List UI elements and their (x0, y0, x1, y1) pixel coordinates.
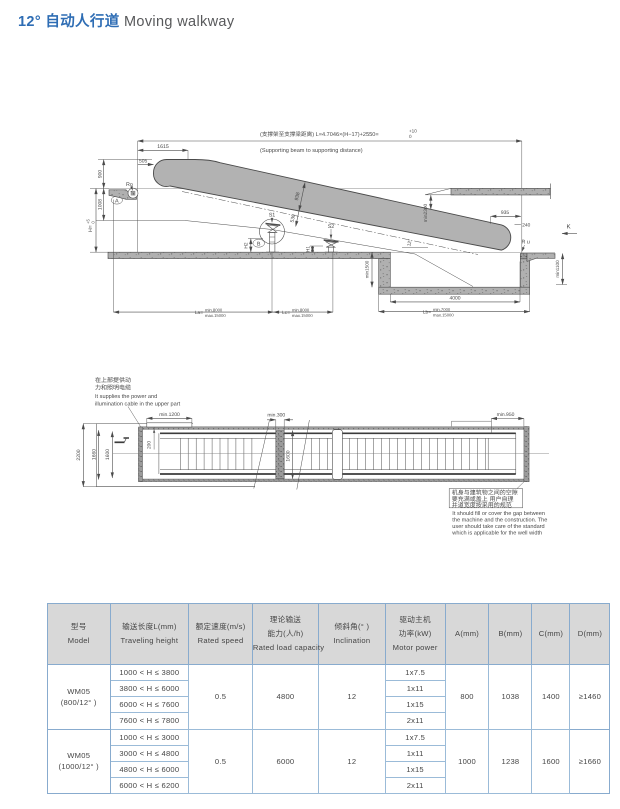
svg-text:It supplies the power and: It supplies the power and (95, 393, 157, 400)
svg-text:min1100: min1100 (555, 260, 560, 278)
svg-text:1600: 1600 (105, 449, 111, 460)
svg-text:H1: H1 (305, 246, 311, 252)
svg-text:min.950: min.950 (497, 412, 515, 418)
svg-text:240: 240 (522, 223, 530, 229)
svg-text:user should take care of the s: user should take care of the standard (452, 523, 544, 530)
svg-text:0: 0 (409, 134, 412, 139)
svg-text:min.8000: min.8000 (292, 307, 310, 312)
svg-text:1660: 1660 (91, 449, 97, 460)
svg-text:(支撑架至支撑梁距离) L=4.7046×(H−17)+25: (支撑架至支撑梁距离) L=4.7046×(H−17)+2550= (260, 131, 379, 138)
svg-text:要充满或盖上 用户自理: 要充满或盖上 用户自理 (452, 495, 514, 503)
svg-text:It should fill or cover the ga: It should fill or cover the gap between (452, 510, 545, 517)
svg-text:4000: 4000 (449, 296, 460, 302)
svg-text:R u: R u (522, 240, 530, 246)
svg-text:K: K (567, 224, 572, 231)
svg-text:H2: H2 (244, 242, 250, 248)
svg-text:2200: 2200 (76, 449, 82, 460)
svg-text:illumination cable in the uppe: illumination cable in the upper part (95, 400, 181, 407)
svg-text:Lb=: Lb= (423, 310, 431, 316)
svg-text:the machine and the constructi: the machine and the construction. The (452, 516, 547, 523)
svg-text:530: 530 (290, 214, 298, 224)
svg-text:which is applicable for the we: which is applicable for the well width (451, 530, 542, 537)
svg-text:1615: 1615 (157, 144, 169, 150)
svg-text:机身与建筑物之间的空隙: 机身与建筑物之间的空隙 (452, 489, 518, 497)
svg-text:max.15000: max.15000 (433, 312, 454, 317)
svg-text:A: A (115, 198, 119, 204)
svg-text:B: B (257, 241, 261, 247)
svg-text:min.7000: min.7000 (433, 307, 451, 312)
svg-text:12°: 12° (406, 239, 413, 247)
svg-text:(Supporting beam to supporting: (Supporting beam to supporting distance) (260, 147, 363, 154)
svg-text:200: 200 (147, 441, 153, 449)
svg-text:1008: 1008 (98, 199, 104, 210)
svg-text:力和照明电缆: 力和照明电缆 (95, 384, 131, 392)
svg-text:1600: 1600 (286, 450, 292, 461)
svg-text:井道宽度按采用的规范: 井道宽度按采用的规范 (452, 501, 512, 509)
svg-text:min1500: min1500 (365, 260, 370, 278)
svg-text:max.15000: max.15000 (292, 313, 313, 318)
svg-text:min2300: min2300 (423, 203, 429, 222)
svg-text:min.1200: min.1200 (159, 412, 180, 418)
svg-text:H=: H= (88, 225, 94, 232)
svg-text:min.8000: min.8000 (205, 307, 223, 312)
svg-text:900: 900 (98, 170, 104, 179)
svg-text:Lc=: Lc= (282, 310, 290, 316)
svg-text:0: 0 (91, 221, 96, 224)
svg-text:505: 505 (139, 158, 148, 164)
svg-text:在上部提供动: 在上部提供动 (95, 376, 131, 384)
svg-text:935: 935 (501, 210, 510, 216)
svg-text:+10: +10 (409, 129, 417, 134)
svg-text:max.15000: max.15000 (205, 313, 226, 318)
svg-text:La=: La= (195, 310, 203, 316)
svg-text:min.300: min.300 (267, 413, 285, 419)
